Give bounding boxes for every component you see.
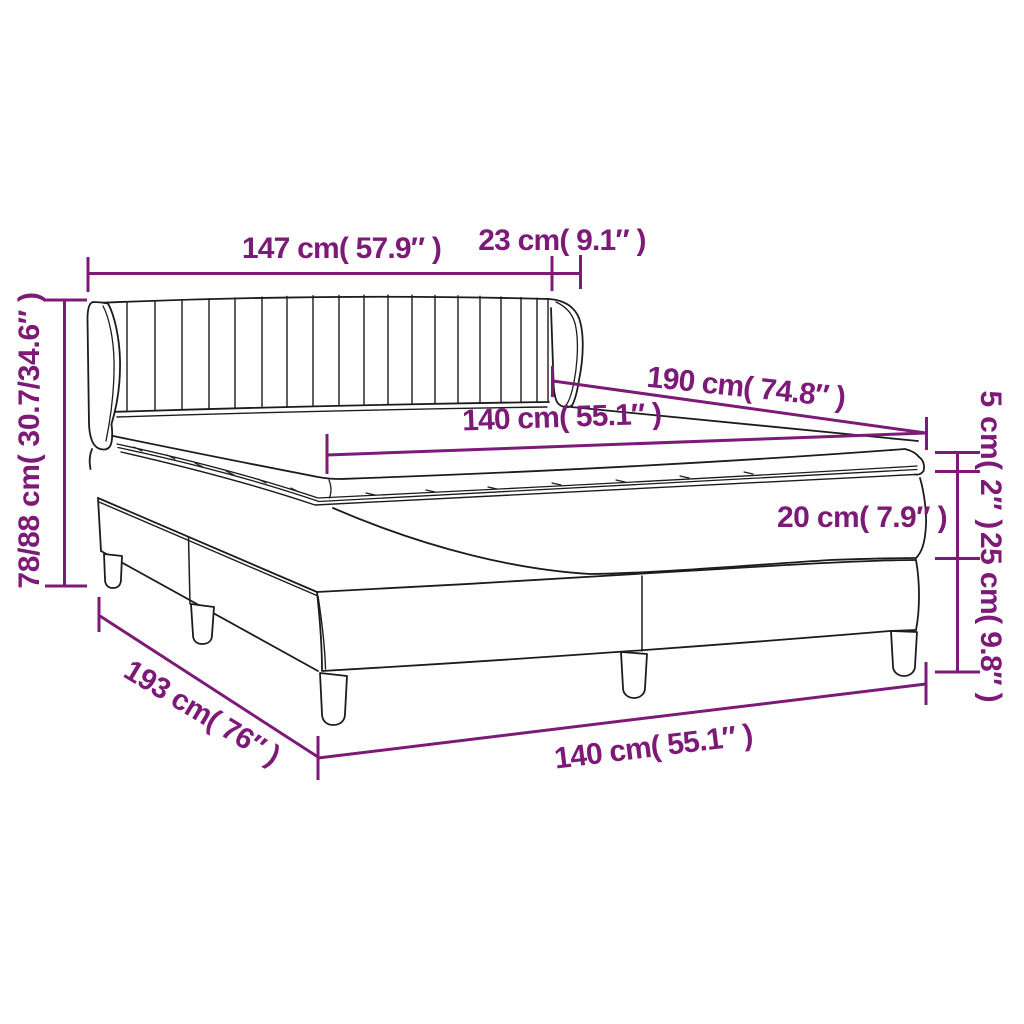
svg-text:23 cm( 9.1″ ): 23 cm( 9.1″ )	[478, 224, 645, 257]
svg-text:147 cm( 57.9″ ): 147 cm( 57.9″ )	[242, 232, 441, 265]
svg-text:78/88 cm( 30.7/34.6″ ): 78/88 cm( 30.7/34.6″ )	[13, 292, 46, 588]
svg-text:20 cm( 7.9″ ): 20 cm( 7.9″ )	[777, 501, 947, 534]
svg-text:140 cm( 55.1″ ): 140 cm( 55.1″ )	[462, 398, 662, 438]
svg-text:25 cm( 9.8″ ): 25 cm( 9.8″ )	[974, 532, 1007, 702]
svg-text:5 cm( 2″ ): 5 cm( 2″ )	[974, 390, 1007, 529]
